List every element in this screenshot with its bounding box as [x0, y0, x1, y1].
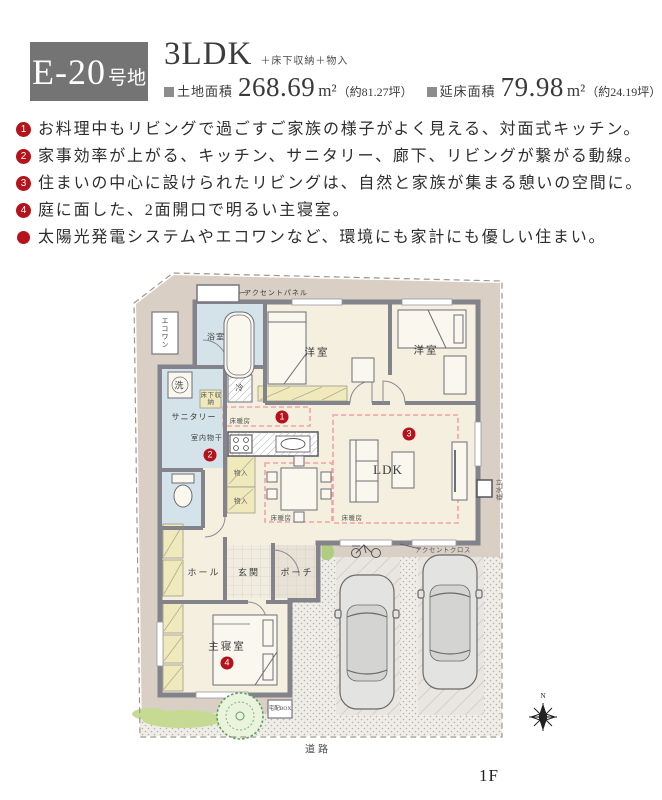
feature-number-icon: 3 [16, 176, 31, 191]
label-closet-1: 物入 [234, 467, 248, 477]
land-area-label: 土地面積 [177, 81, 233, 100]
label-hall: ホール [187, 566, 220, 579]
label-master-bedroom: 主寝室 [208, 639, 246, 654]
feature-list: 1お料理中もリビングで過ごすご家族の様子がよく見える、対面式キッチン。 2家事効… [16, 116, 643, 251]
floor-area-unit: m² [567, 81, 585, 101]
feature-item: 3住まいの中心に設けられたリビングは、自然と家族が集まる憩いの空間に。 [16, 170, 643, 197]
label-sanitary: サニタリー [172, 412, 217, 423]
floor-area-value: 79.98 [501, 72, 564, 103]
label-accent-panel: アクセントパネル [244, 288, 308, 298]
land-area-note: （約81.27坪） [338, 83, 413, 100]
plan-marker-1: 1 [276, 411, 289, 424]
square-bullet-icon [427, 87, 437, 97]
area-row: 土地面積 268.69 m² （約81.27坪） 延床面積 79.98 m² （… [164, 72, 662, 103]
lot-number-badge: E-20 号地 [30, 42, 148, 101]
plan-marker-2: 2 [204, 449, 217, 462]
feature-number-icon: 4 [16, 203, 31, 218]
feature-number-icon: 1 [16, 122, 31, 137]
feature-item: 4庭に面した、2面開口で明るい主寝室。 [16, 197, 643, 224]
label-ldk: LDK [373, 462, 403, 478]
label-compass-north: N [540, 692, 545, 700]
label-floor-heating-2: 床暖房 [271, 512, 292, 522]
label-western-room-1: 洋室 [305, 345, 330, 360]
label-fridge: 冷 [236, 383, 245, 394]
floor-area-label: 延床面積 [440, 81, 496, 100]
floor-plan-drawing [0, 262, 662, 800]
floor-plan: アクセントパネル エコワン 浴室 洗 床下収納 サニタリー 室内物干 冷 洋室 … [0, 262, 662, 800]
label-porch: ポーチ [280, 566, 313, 579]
feature-text: 庭に面した、2面開口で明るい主寝室。 [38, 197, 350, 224]
label-wash: 洗 [174, 379, 185, 392]
feature-text: 家事効率が上がる、キッチン、サニタリー、廊下、リビングが繋がる動線。 [38, 143, 642, 170]
label-indoor-drying: 室内物干 [191, 433, 223, 443]
plan-marker-4: 4 [221, 657, 234, 670]
label-delivery-box: 宅配BOX [268, 706, 292, 712]
land-area-unit: m² [318, 81, 336, 101]
car [335, 575, 399, 709]
tree-icon [217, 693, 263, 739]
flyer-page: E-20 号地 3LDK＋床下収納＋物入 土地面積 268.69 m² （約81… [0, 0, 662, 800]
plan-marker-3: 3 [403, 428, 416, 441]
feature-item: 1お料理中もリビングで過ごすご家族の様子がよく見える、対面式キッチン。 [16, 116, 643, 143]
feature-text: お料理中もリビングで過ごすご家族の様子がよく見える、対面式キッチン。 [38, 116, 641, 143]
label-bath: 浴室 [207, 332, 225, 343]
feature-dot-icon [17, 231, 30, 244]
label-underfloor-storage: 床下収納 [199, 392, 223, 406]
feature-text: 太陽光発電システムやエコワンなど、環境にも家計にも優しい住まい。 [38, 224, 606, 251]
land-area-value: 268.69 [238, 72, 315, 103]
square-bullet-icon [164, 87, 174, 97]
plan-type-row: 3LDK＋床下収納＋物入 [164, 36, 348, 73]
label-western-room-2: 洋室 [414, 343, 439, 358]
label-accent-cloth: アクセントクロス [415, 544, 471, 554]
label-ecoone: エコワン [160, 317, 170, 349]
approach-path [292, 602, 318, 715]
lot-number: E-20 [32, 51, 106, 93]
feature-text: 住まいの中心に設けられたリビングは、自然と家族が集まる憩いの空間に。 [38, 170, 643, 197]
label-floor-heating-1: 床暖房 [230, 415, 251, 425]
feature-item: 2家事効率が上がる、キッチン、サニタリー、廊下、リビングが繋がる動線。 [16, 143, 643, 170]
floor-label: 1F [479, 766, 499, 786]
lot-number-suffix: 号地 [108, 53, 146, 90]
feature-item: 太陽光発電システムやエコワンなど、環境にも家計にも優しい住まい。 [16, 224, 643, 251]
floor-area-note: （約24.19坪） [586, 83, 661, 100]
label-water-tap: 立水栓 [492, 479, 502, 502]
plan-extras: ＋床下収納＋物入 [260, 56, 348, 67]
label-road: 道路 [305, 741, 331, 756]
plan-type: 3LDK [164, 36, 252, 72]
feature-number-icon: 2 [16, 149, 31, 164]
compass-icon [529, 703, 557, 731]
car [418, 555, 482, 689]
water-tap-box [477, 480, 492, 497]
label-floor-heating-3: 床暖房 [342, 512, 363, 522]
label-entrance: 玄関 [238, 566, 260, 579]
label-closet-2: 物入 [234, 495, 248, 505]
